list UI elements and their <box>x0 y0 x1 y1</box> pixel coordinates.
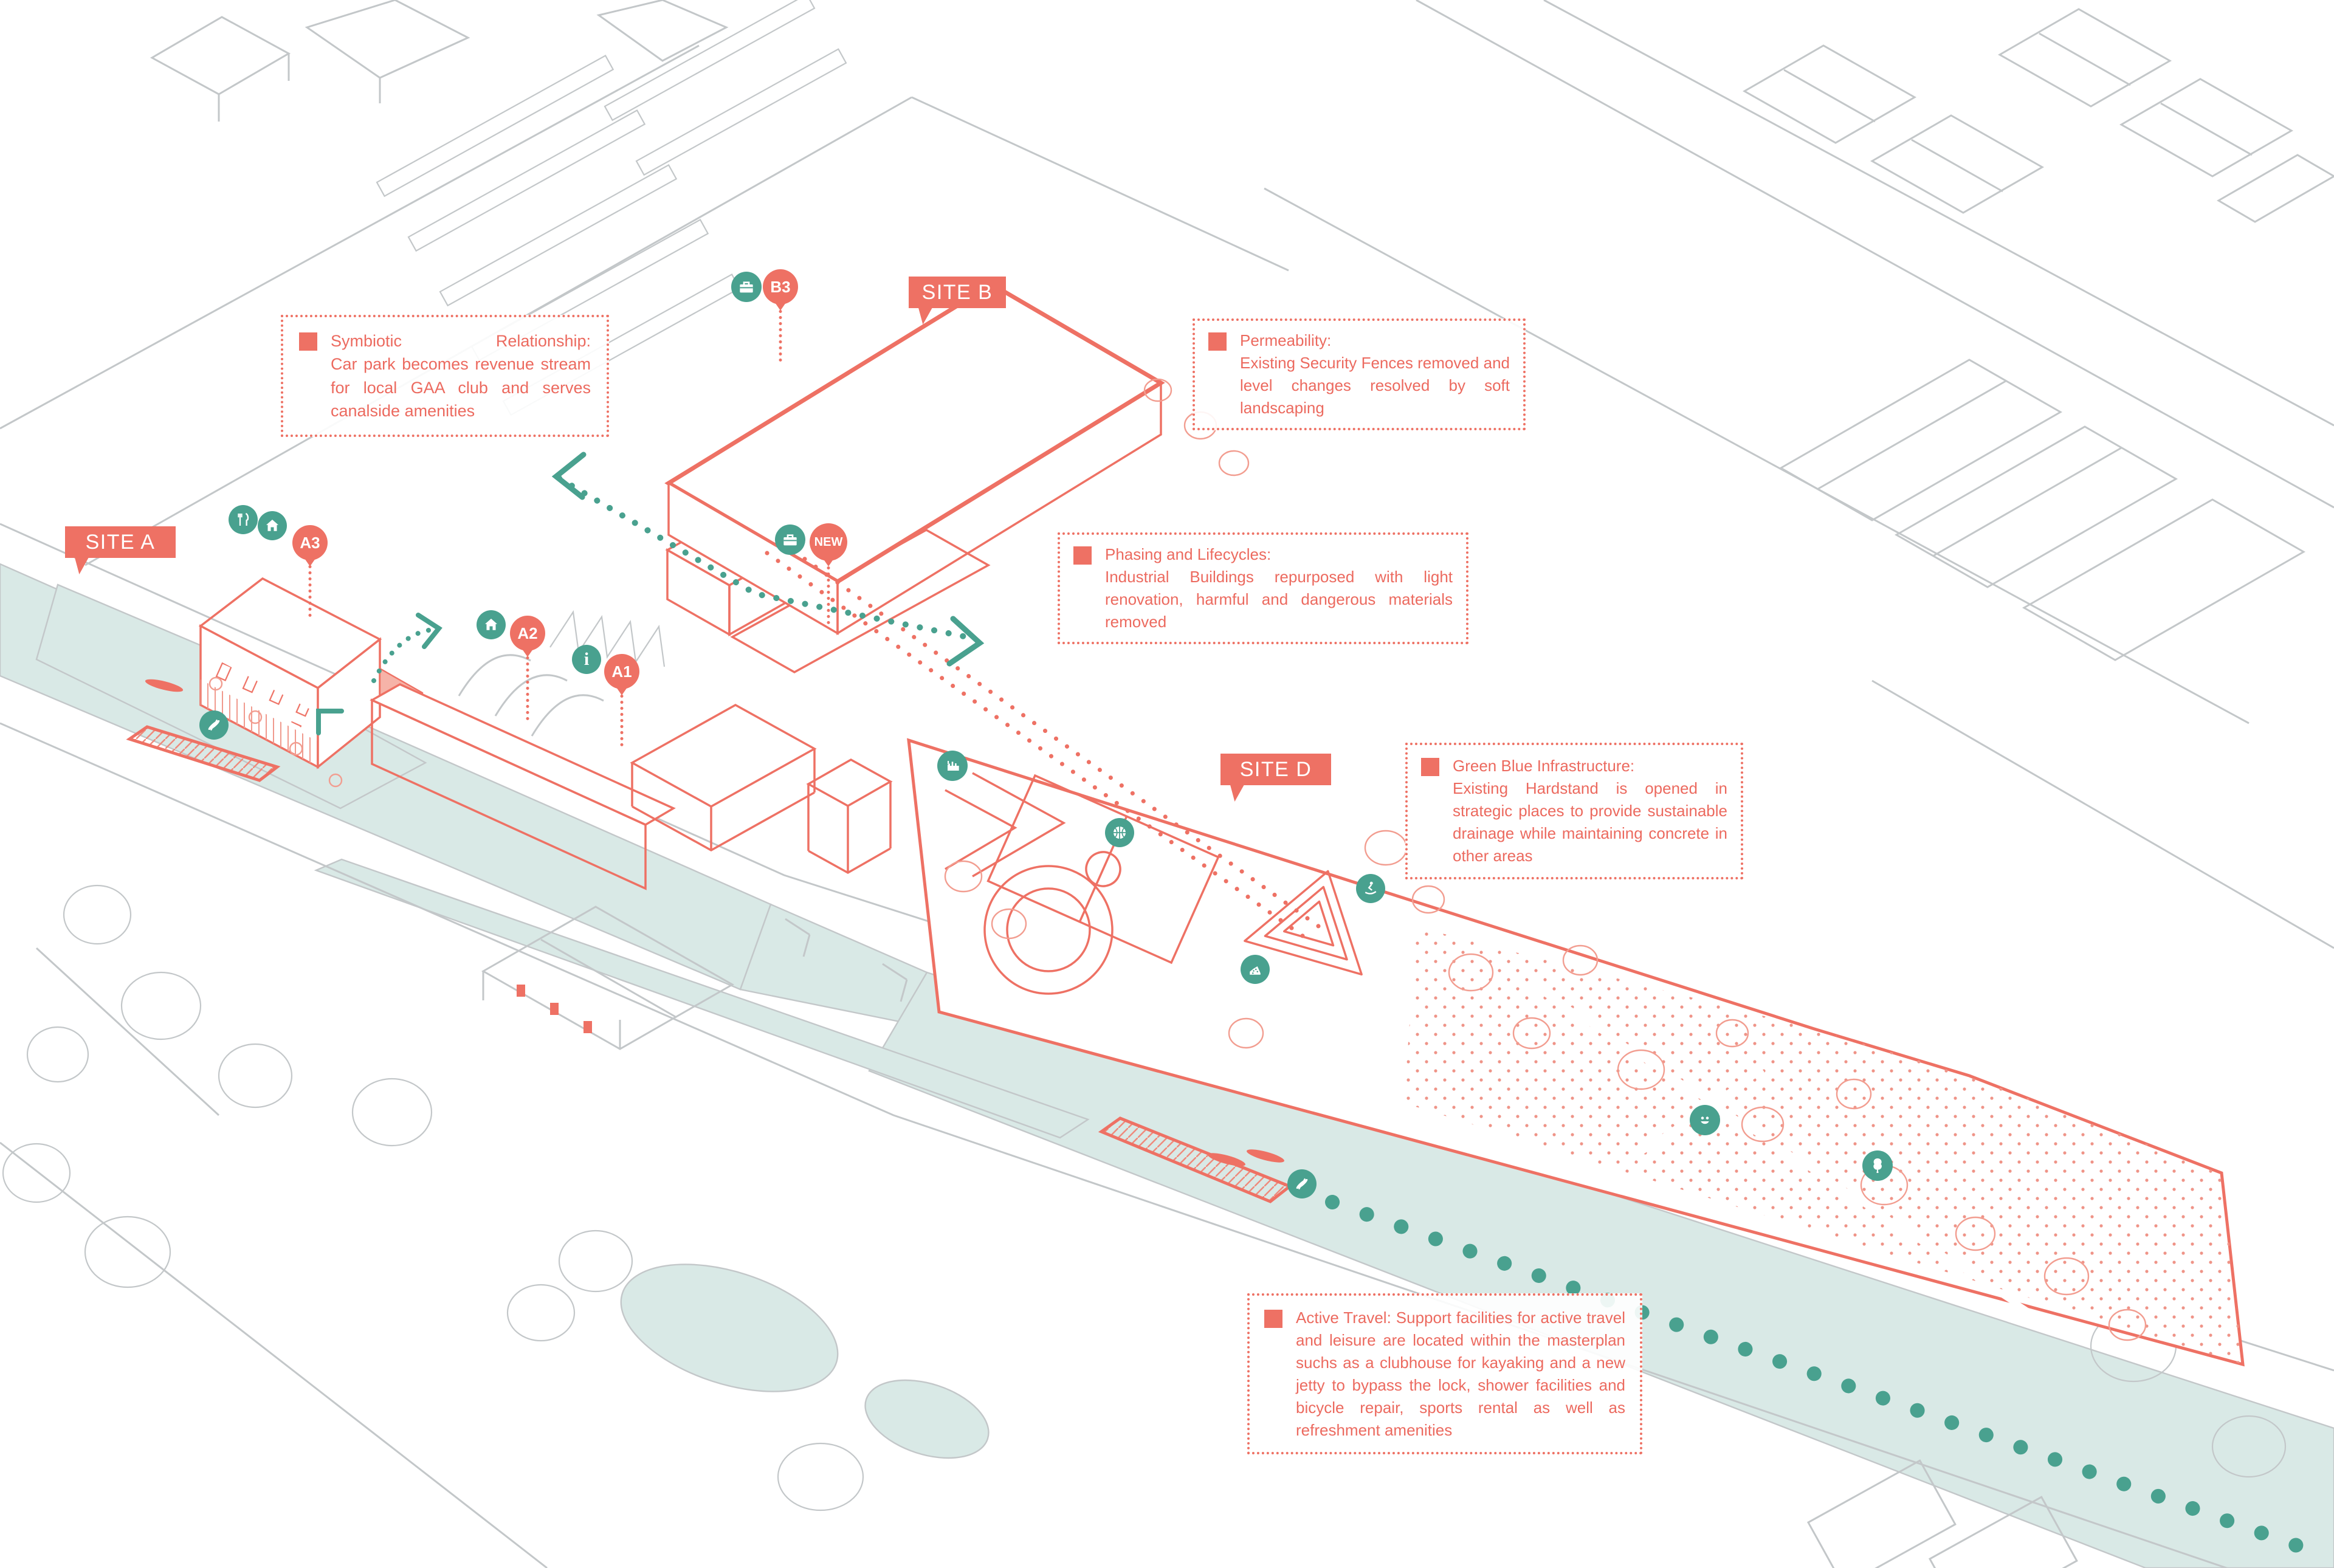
note-bullet-square <box>299 332 317 351</box>
site-b-label-text: SITE B <box>922 281 993 304</box>
marker-a1-tail <box>616 687 627 695</box>
marker-new-leader <box>827 560 830 624</box>
basketball-icon <box>1105 818 1134 847</box>
site-d-label-text: SITE D <box>1240 758 1312 782</box>
note-permeability-body: Existing Security Fences removed and lev… <box>1240 354 1510 417</box>
marker-a3: A3 <box>292 525 328 560</box>
note-green-blue: Green Blue Infrastructure: Existing Hard… <box>1405 743 1743 879</box>
smiley-icon <box>1690 1105 1720 1135</box>
briefcase-icon <box>731 272 762 302</box>
site-a-label: SITE A <box>65 526 176 558</box>
masterplan-canvas: SITE A SITE B SITE D B3 A3 A2 A1 NEW <box>0 0 2334 1568</box>
note-bullet-square <box>1421 758 1439 776</box>
marker-a3-text: A3 <box>300 534 320 552</box>
marker-a1: A1 <box>604 654 639 689</box>
marker-b3-tail <box>775 303 786 311</box>
site-b-label: SITE B <box>909 277 1006 308</box>
marker-a2: A2 <box>510 616 545 651</box>
home-icon <box>477 610 506 639</box>
note-permeability-title: Permeability: <box>1240 329 1510 352</box>
marker-new: NEW <box>810 523 847 561</box>
marker-a1-text: A1 <box>611 662 632 681</box>
info-marker-text: i <box>584 649 589 670</box>
kayak-icon <box>199 710 229 740</box>
note-green-blue-title: Green Blue Infrastructure: <box>1453 755 1727 777</box>
site-a-buildings <box>201 579 890 889</box>
note-bullet-square <box>1073 546 1092 565</box>
restaurant-icon <box>229 505 258 534</box>
axonometric-drawing <box>0 0 2334 1568</box>
marker-a1-leader <box>621 689 624 746</box>
note-bullet-square <box>1208 332 1227 351</box>
marker-new-text: NEW <box>814 535 843 549</box>
marker-a3-leader <box>309 559 312 617</box>
marker-a2-leader <box>526 650 529 720</box>
briefcase-icon <box>775 524 805 555</box>
home-icon <box>258 511 287 540</box>
note-phasing-title: Phasing and Lifecycles: <box>1105 543 1453 566</box>
marker-a2-text: A2 <box>517 624 537 643</box>
skateboard-icon <box>1356 874 1385 903</box>
note-symbiotic: Symbiotic Relationship: Car park becomes… <box>281 315 609 437</box>
arrowhead-up-left <box>556 455 583 497</box>
marker-b3-text: B3 <box>770 278 790 297</box>
marker-b3: B3 <box>763 269 798 304</box>
climbing-icon <box>1241 955 1270 984</box>
marker-new-tail <box>823 559 834 566</box>
industry-icon <box>937 751 968 781</box>
marker-a3-tail <box>305 559 315 566</box>
site-d-label: SITE D <box>1220 754 1331 785</box>
note-phasing-body: Industrial Buildings repurposed with lig… <box>1105 568 1453 631</box>
note-active-travel: Active Travel: Support facilities for ac… <box>1247 1293 1642 1454</box>
note-symbiotic-title: Symbiotic Relationship: <box>331 329 591 352</box>
tree-icon <box>1862 1150 1893 1181</box>
note-green-blue-body: Existing Hardstand is opened in strategi… <box>1453 779 1727 865</box>
kayak-icon <box>1287 1169 1317 1198</box>
note-permeability: Permeability: Existing Security Fences r… <box>1193 318 1526 430</box>
note-symbiotic-body: Car park becomes revenue stream for loca… <box>331 355 591 420</box>
note-active-travel-title: Active Travel: <box>1296 1308 1391 1327</box>
arrowhead-down-right <box>949 619 980 664</box>
marker-b3-leader <box>779 304 782 362</box>
info-marker: i <box>572 645 601 674</box>
note-bullet-square <box>1264 1310 1282 1328</box>
site-a-label-text: SITE A <box>86 531 156 554</box>
marker-a2-tail <box>522 649 533 657</box>
note-active-travel-body: Support facilities for active travel and… <box>1296 1308 1625 1439</box>
note-phasing: Phasing and Lifecycles: Industrial Build… <box>1058 532 1468 644</box>
